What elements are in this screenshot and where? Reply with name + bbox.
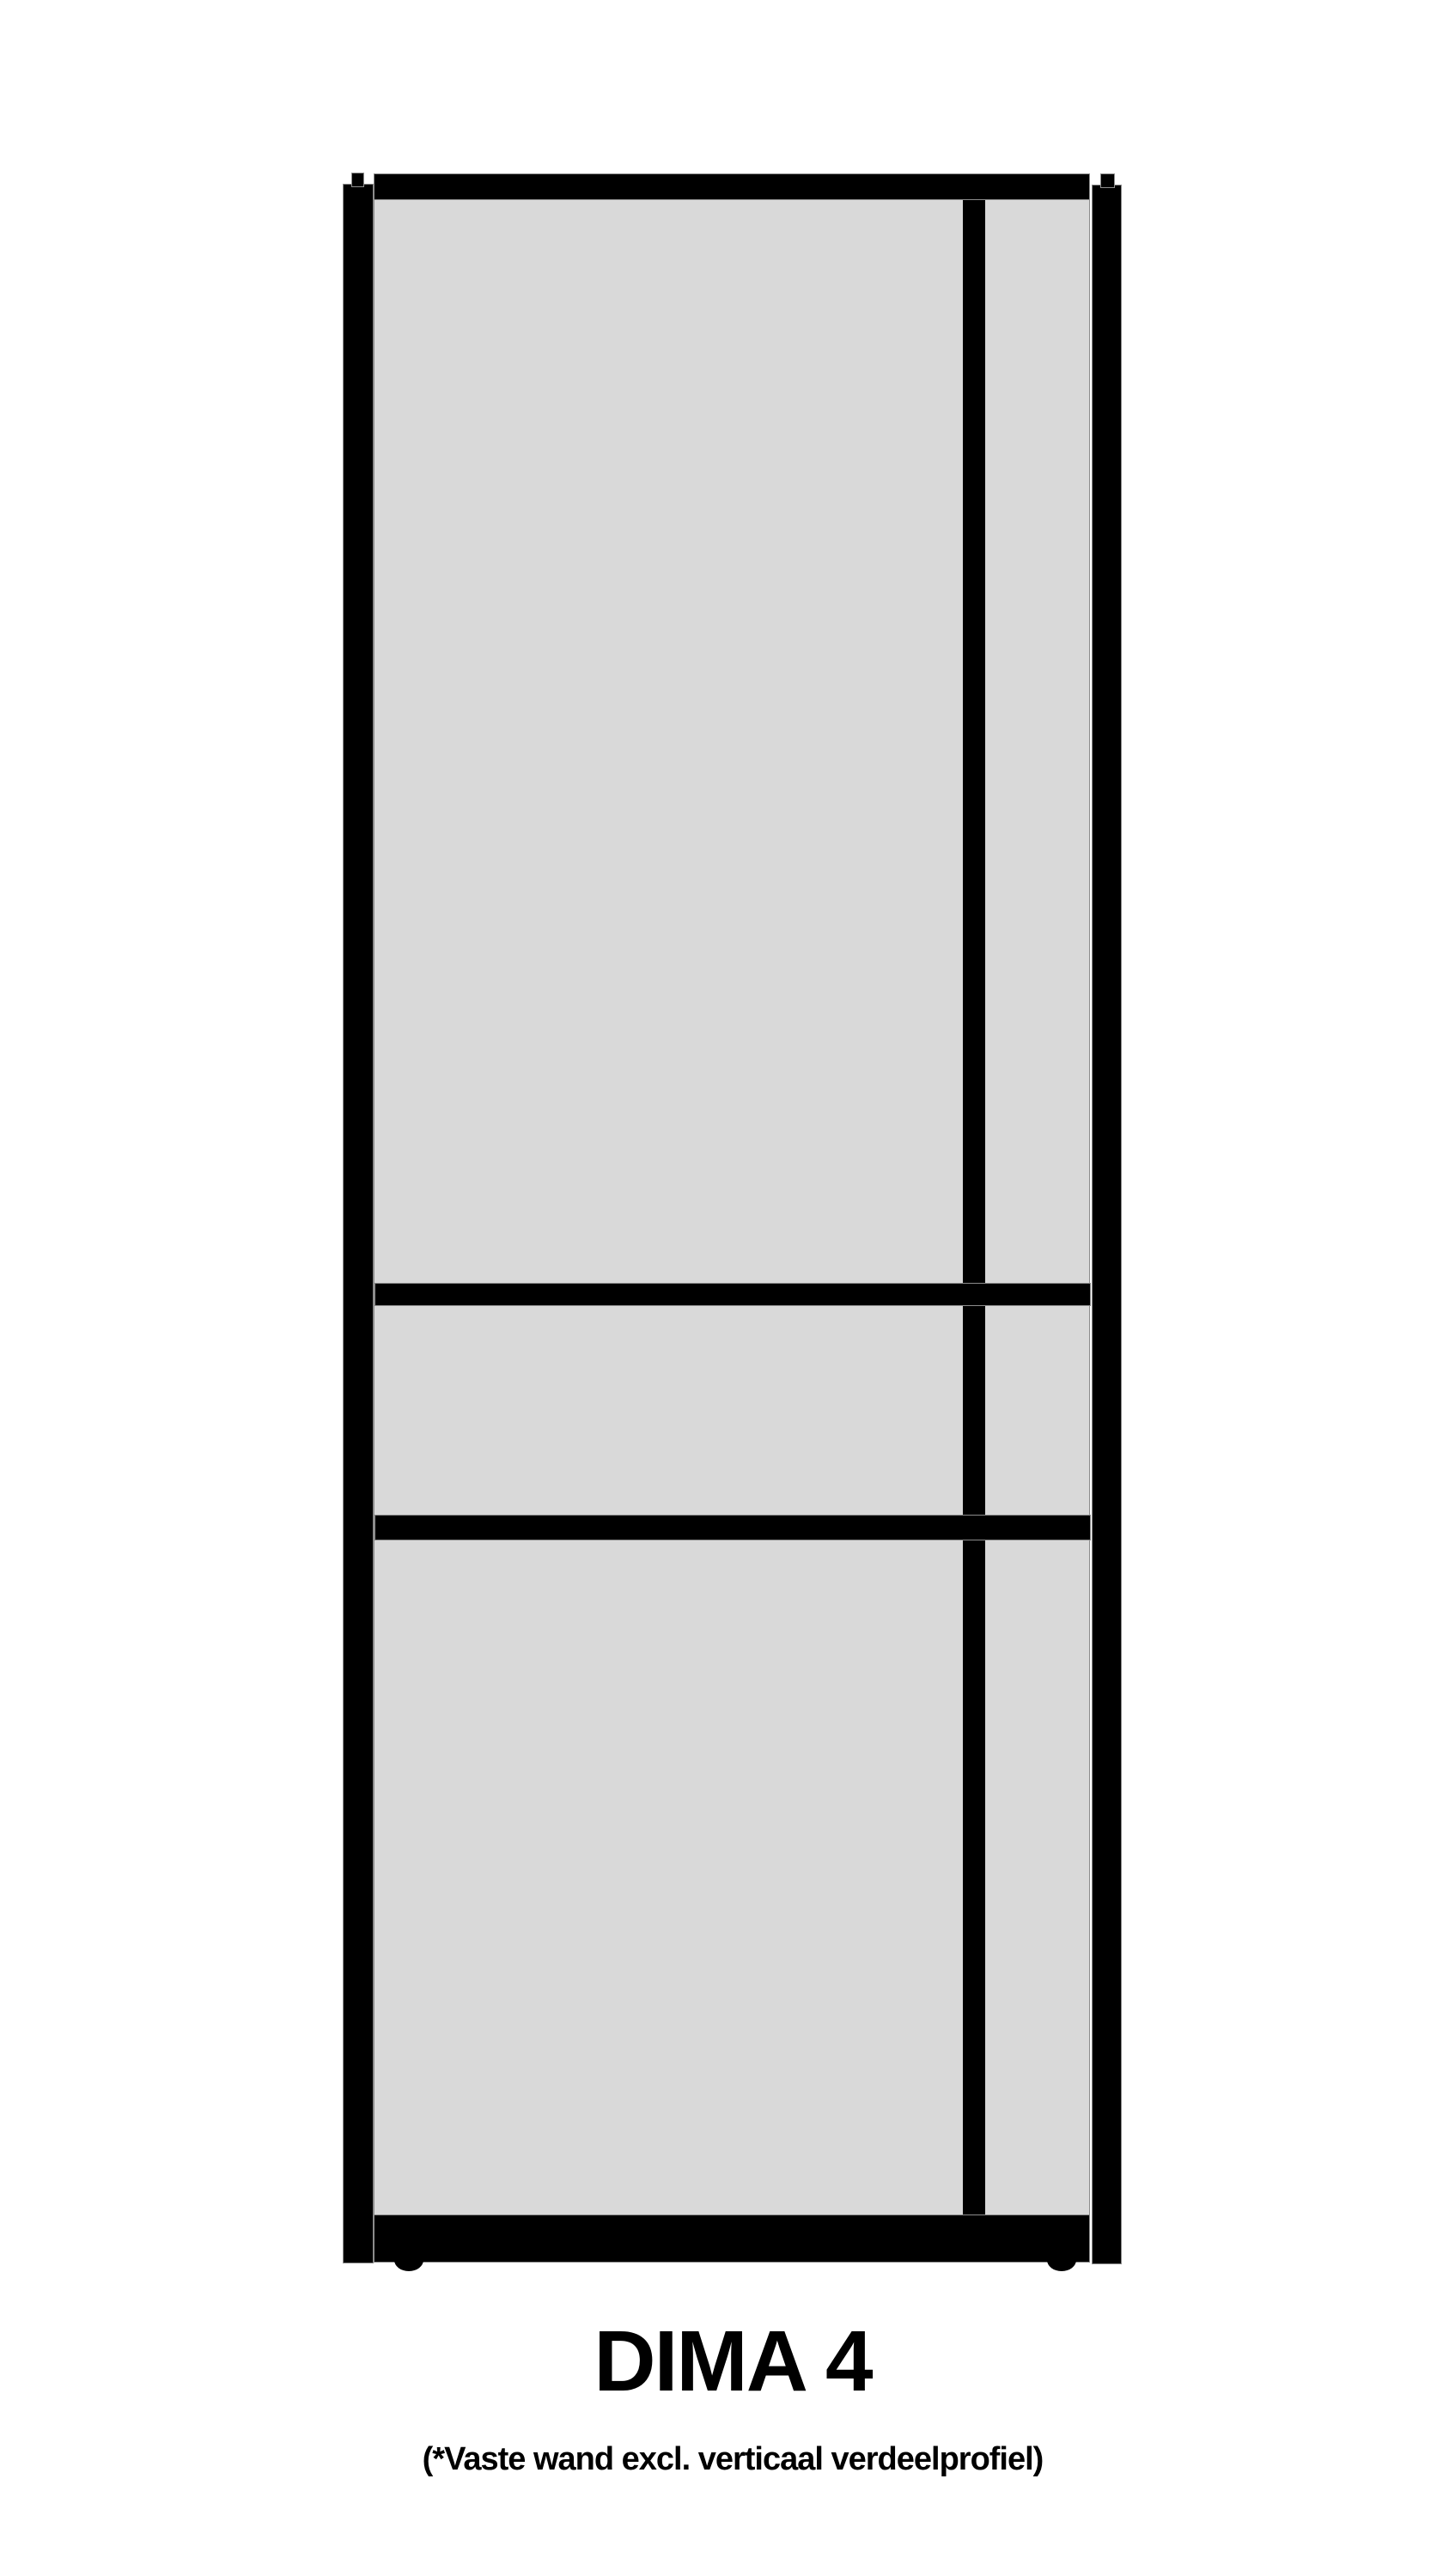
figure-title: DIMA 4 bbox=[344, 2318, 1122, 2404]
wall-profile-right bbox=[1093, 185, 1121, 2263]
horizontal-divider-profile-lower bbox=[375, 1516, 1090, 1540]
mount-tab-right bbox=[1101, 174, 1114, 187]
wall-profile-left bbox=[344, 185, 373, 2263]
mount-tab-left bbox=[352, 173, 363, 186]
figure-subtitle: (*Vaste wand excl. verticaal verdeelprof… bbox=[206, 2442, 1259, 2478]
product-drawing: DIMA 4 (*Vaste wand excl. verticaal verd… bbox=[0, 0, 1449, 2576]
bottom-profile bbox=[374, 2215, 1089, 2262]
vertical-divider-profile bbox=[963, 199, 985, 2215]
adjuster-foot-right bbox=[1047, 2260, 1076, 2271]
top-profile bbox=[374, 174, 1089, 199]
horizontal-divider-profile-upper bbox=[375, 1284, 1090, 1305]
adjuster-foot-left bbox=[394, 2260, 423, 2271]
